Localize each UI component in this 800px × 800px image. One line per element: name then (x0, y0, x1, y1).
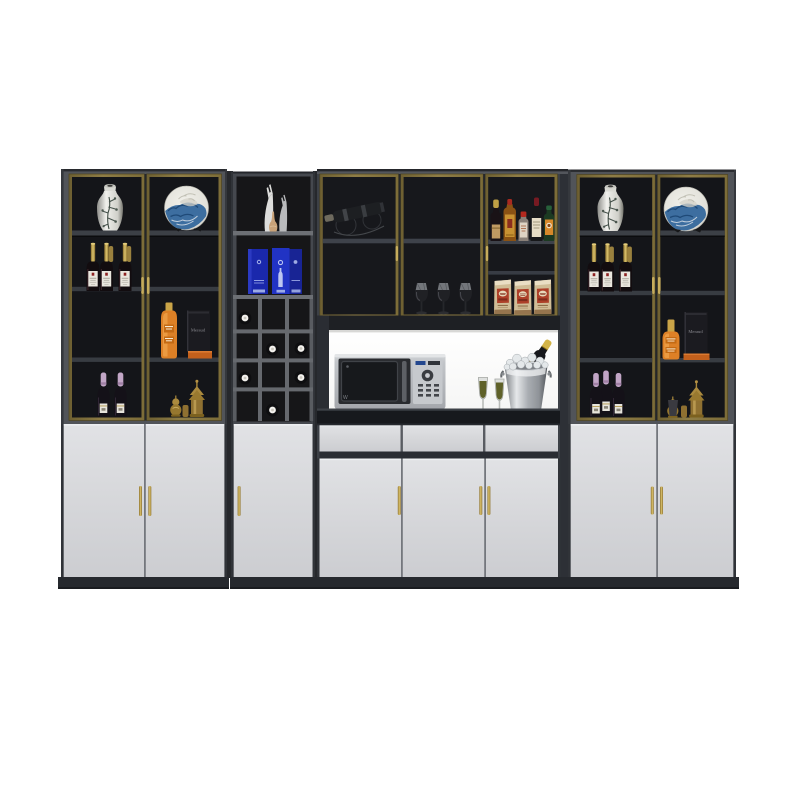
svg-text:Meraud: Meraud (688, 329, 703, 334)
svg-text:W: W (343, 395, 348, 401)
